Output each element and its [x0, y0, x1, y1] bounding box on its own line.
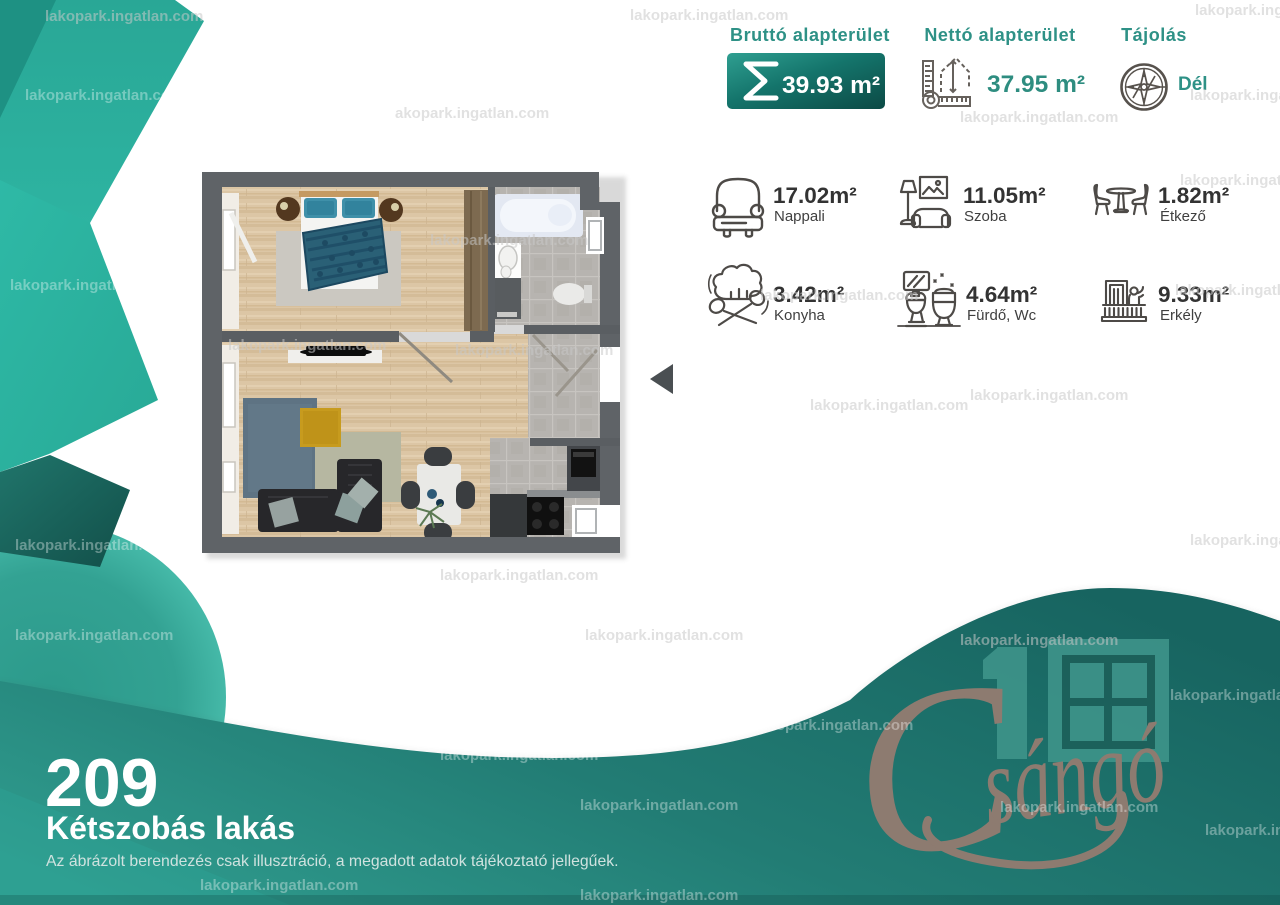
- svg-text:lakopark.ingatlan.com: lakopark.ingatlan.com: [228, 337, 386, 354]
- svg-text:lakopark.ingatlan.com: lakopark.ingatlan.com: [440, 567, 598, 584]
- svg-text:lakopark.ingatlan.com: lakopark.ingatlan.com: [455, 342, 613, 359]
- svg-text:lakopark.ingatlan.com: lakopark.ingatlan.com: [960, 109, 1118, 126]
- svg-text:lakopark.ingatlan.com: lakopark.ingatlan.com: [25, 87, 183, 104]
- svg-text:lakopark.ingatlan.com: lakopark.ingatlan.com: [440, 747, 598, 764]
- svg-text:lakopark.ingatlan.com: lakopark.ingatlan.com: [580, 887, 738, 904]
- svg-text:lakopark.ingatlan.com: lakopark.ingatlan.com: [1175, 282, 1280, 299]
- svg-text:lakopark.ingatlan.com: lakopark.ingatlan.com: [1000, 799, 1158, 816]
- svg-text:Étkező: Étkező: [1160, 208, 1206, 225]
- svg-text:Nappali: Nappali: [774, 208, 825, 225]
- svg-text:Tájolás: Tájolás: [1121, 25, 1187, 45]
- svg-text:Konyha: Konyha: [774, 307, 826, 324]
- svg-text:sángó: sángó: [975, 700, 1172, 848]
- svg-text:lakopark.ingatlan.com: lakopark.ingatlan.com: [1205, 822, 1280, 839]
- svg-text:Fürdő, Wc: Fürdő, Wc: [967, 307, 1037, 324]
- svg-text:Kétszobás lakás: Kétszobás lakás: [46, 810, 295, 846]
- svg-text:lakopark.ingatlan.com: lakopark.ingatlan.com: [585, 627, 743, 644]
- svg-text:17.02m²: 17.02m²: [773, 183, 857, 208]
- svg-text:Erkély: Erkély: [1160, 307, 1202, 324]
- svg-text:lakopark.ingatlan.com: lakopark.ingatlan.com: [430, 232, 588, 249]
- svg-text:lakopark.ingatlan.com: lakopark.ingatlan.com: [1180, 172, 1280, 189]
- svg-text:lakopark.ingatlan.com: lakopark.ingatlan.com: [200, 877, 358, 894]
- svg-text:Szoba: Szoba: [964, 208, 1007, 225]
- svg-text:Az ábrázolt berendezés csak il: Az ábrázolt berendezés csak illusztráció…: [46, 853, 619, 870]
- svg-text:lakopark.ingatlan.com: lakopark.ingatlan.com: [1195, 2, 1280, 19]
- svg-text:lakopark.ingatlan.com: lakopark.ingatlan.com: [580, 797, 738, 814]
- svg-text:39.93 m²: 39.93 m²: [782, 72, 880, 99]
- svg-text:lakopark.ingatlan.com: lakopark.ingatlan.com: [10, 277, 168, 294]
- svg-text:lakopark.ingatlan.com: lakopark.ingatlan.com: [835, 427, 993, 444]
- svg-text:lakopark.ingatlan.com: lakopark.ingatlan.com: [1170, 687, 1280, 704]
- svg-text:lakopark.ingatlan.com: lakopark.ingatlan.com: [630, 7, 788, 24]
- svg-text:lakopark.ingatlan.com: lakopark.ingatlan.com: [15, 537, 173, 554]
- svg-text:lakopark.ingatlan.com: lakopark.ingatlan.com: [1190, 532, 1280, 549]
- svg-text:lakopark.ingatlan.com: lakopark.ingatlan.com: [760, 287, 918, 304]
- svg-text:lakopark.ingatlan.com: lakopark.ingatlan.com: [960, 632, 1118, 649]
- svg-text:lakopark.ingatlan.com: lakopark.ingatlan.com: [810, 397, 968, 414]
- svg-text:37.95 m²: 37.95 m²: [987, 71, 1085, 98]
- svg-text:lakopark.ingatlan.com: lakopark.ingatlan.com: [970, 387, 1128, 404]
- svg-text:akopark.ingatlan.com: akopark.ingatlan.com: [395, 105, 549, 122]
- svg-text:lakopark.ingatlan.com: lakopark.ingatlan.com: [755, 717, 913, 734]
- svg-text:lakopark.ingatlan.com: lakopark.ingatlan.com: [15, 627, 173, 644]
- svg-text:Bruttó alapterület: Bruttó alapterület: [730, 25, 890, 45]
- svg-text:lakopark.ingatlan.com: lakopark.ingatlan.com: [1190, 87, 1280, 104]
- svg-text:Nettó alapterület: Nettó alapterület: [924, 25, 1075, 45]
- svg-text:11.05m²: 11.05m²: [963, 183, 1046, 208]
- svg-text:4.64m²: 4.64m²: [966, 282, 1038, 307]
- svg-text:lakopark.ingatlan.com: lakopark.ingatlan.com: [45, 8, 203, 25]
